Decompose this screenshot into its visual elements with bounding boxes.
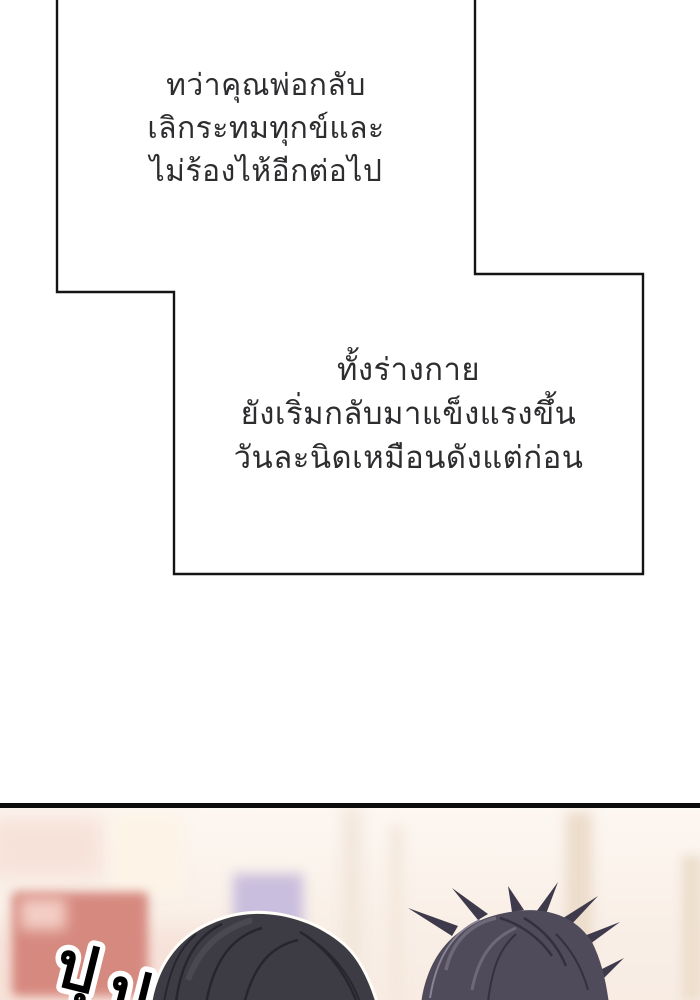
webtoon-page: { "page": { "width": 700, "height": 1000… (0, 0, 700, 1000)
left-person-head (152, 914, 376, 1000)
narration-bottom-line-2: ยังเริ่มกลับมาแข็งแรงขึ้น (174, 392, 643, 436)
sfx-syllable-2: ปุ (100, 954, 158, 1000)
narration-text-bottom: ทั้งร่างกาย ยังเริ่มกลับมาแข็งแรงขึ้น วั… (174, 348, 643, 480)
illustration-panel: ปุ ปุ (0, 808, 700, 1000)
narration-top-line-1: ทว่าคุณพ่อกลับ (57, 64, 475, 107)
narration-bottom-line-1: ทั้งร่างกาย (174, 348, 643, 392)
right-person-head (408, 882, 624, 1000)
sfx-syllable-1: ปุ (48, 928, 106, 1000)
characters-illustration: ปุ ปุ (0, 808, 700, 1000)
narration-text-top: ทว่าคุณพ่อกลับ เลิกระทมทุกข์และ ไม่ร้องไ… (57, 64, 475, 193)
narration-top-line-3: ไม่ร้องไห้อีกต่อไป (57, 150, 475, 193)
narration-bottom-line-3: วันละนิดเหมือนดังแต่ก่อน (174, 436, 643, 480)
narration-top-line-2: เลิกระทมทุกข์และ (57, 107, 475, 150)
sound-effect-text: ปุ ปุ (48, 928, 158, 1000)
